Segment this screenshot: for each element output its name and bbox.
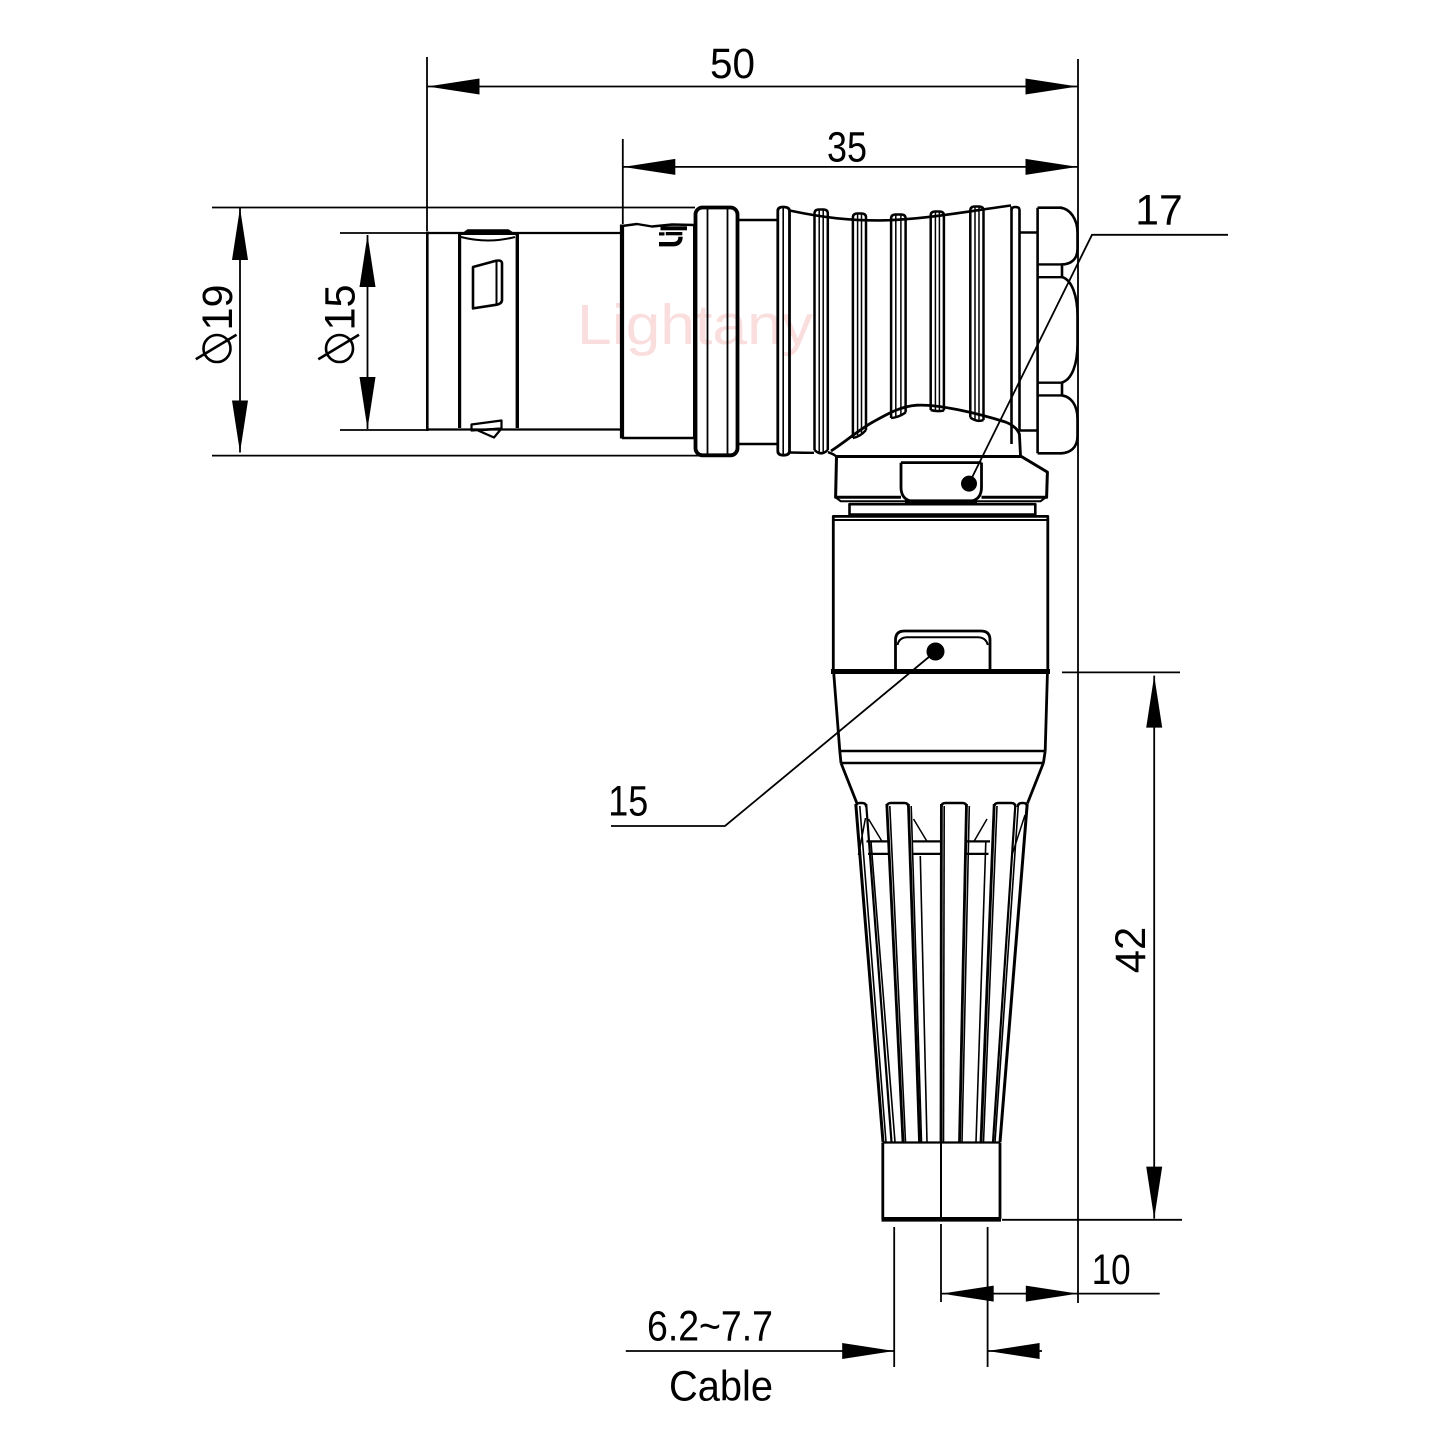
svg-text:6.2~7.7: 6.2~7.7 xyxy=(647,1303,773,1351)
svg-text:50: 50 xyxy=(710,40,755,88)
svg-text:19: 19 xyxy=(194,285,242,331)
svg-text:15: 15 xyxy=(317,285,365,331)
svg-text:42: 42 xyxy=(1107,927,1155,974)
svg-text:17: 17 xyxy=(1135,187,1183,235)
svg-text:Cable: Cable xyxy=(669,1363,773,1411)
svg-text:15: 15 xyxy=(608,778,648,826)
svg-text:35: 35 xyxy=(827,124,867,172)
svg-text:10: 10 xyxy=(1092,1246,1131,1294)
